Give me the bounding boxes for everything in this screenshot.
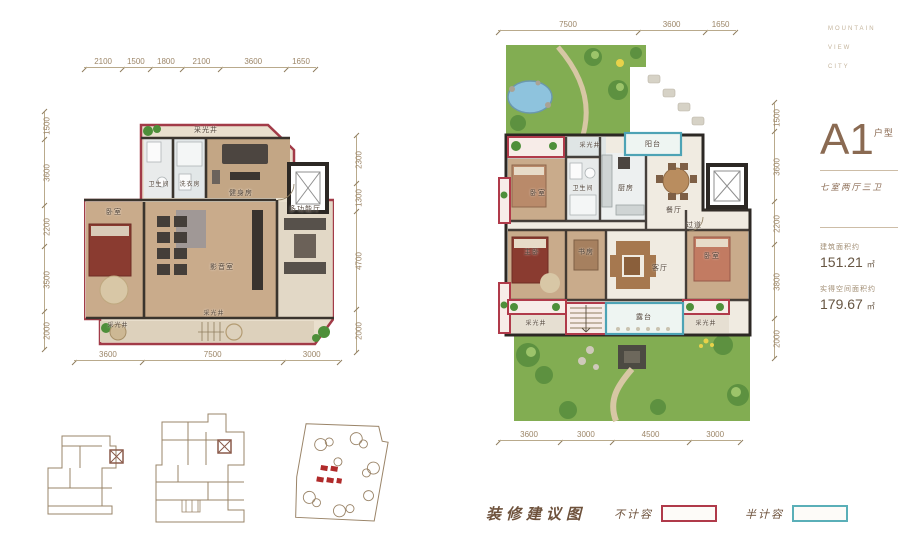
room-label-laundry: 洗衣房 (179, 179, 200, 188)
room-label-multi-hall: 多功能厅 (289, 204, 321, 214)
room-label-lightwell: 采光井 (579, 140, 600, 149)
built-area-label: 建筑面积约 (820, 242, 898, 252)
dim-label: 3000 (706, 430, 724, 439)
dim-label: 4500 (642, 430, 660, 439)
keyplan-thumb-2 (148, 410, 253, 535)
floorplan-sheet: 2100 1500 1800 2100 3600 1650 1500 3600 … (0, 0, 900, 545)
unit-name-suffix: 户型 (874, 128, 894, 138)
dim-label: 1300 (354, 189, 363, 207)
dim-label: 1650 (292, 57, 310, 66)
dim-label: 3600 (99, 350, 117, 359)
dim-label: 7500 (559, 20, 577, 29)
dim-label: 2000 (772, 330, 781, 348)
dim-label: 2100 (192, 57, 210, 66)
dim-label: 1500 (127, 57, 145, 66)
room-label-lightwell: 采光井 (203, 308, 224, 317)
siteplan-thumb (284, 414, 392, 532)
built-area-value: 151.21 (820, 254, 863, 270)
brand-line: CITY (828, 64, 898, 70)
room-label-lightwell: 采光井 (525, 318, 546, 327)
legend-item-half: 半计容 (745, 505, 848, 522)
dim-label: 3000 (303, 350, 321, 359)
room-label-lightwell: 采光井 (194, 125, 218, 135)
room-label-balcony: 阳台 (645, 139, 661, 149)
room-label-living: 客厅 (652, 263, 668, 273)
legend-swatch-red (661, 505, 717, 522)
dim-label: 2300 (354, 151, 363, 169)
left-plan-dims-bottom: 3600 7500 3000 (74, 348, 340, 364)
dim-label: 4700 (354, 252, 363, 270)
room-label-master: 主卧 (524, 247, 540, 257)
dim-label: 1500 (772, 109, 781, 127)
basement-floorplan: 采光井 卫生间 洗衣房 健身房 多功能厅 卧室 影音室 采光井 采光井 (84, 122, 334, 347)
dim-label: 2100 (94, 57, 112, 66)
room-label-lightwell: 采光井 (107, 320, 128, 329)
dim-label: 2000 (42, 322, 51, 340)
dim-label: 2000 (354, 322, 363, 340)
right-plan-dims-right: 1500 3600 2200 3800 2000 (766, 103, 782, 358)
room-label-gym: 健身房 (229, 188, 253, 198)
left-plan-dims-top: 2100 1500 1800 2100 3600 1650 (84, 55, 316, 71)
dim-label: 3800 (772, 273, 781, 291)
built-area: 建筑面积约 151.21 ㎡ (820, 242, 898, 270)
dim-label: 3500 (42, 271, 51, 289)
dim-label: 1650 (712, 20, 730, 29)
legend-swatch-teal (792, 505, 848, 522)
brand-line: VIEW (828, 45, 898, 51)
room-label-bath: 卫生间 (148, 179, 169, 188)
dim-label: 3600 (244, 57, 262, 66)
dim-label: 1500 (42, 117, 51, 135)
unit-name: A1 (820, 115, 874, 164)
dim-label: 7500 (204, 350, 222, 359)
legend-title: 装修建议图 (486, 503, 586, 524)
area-unit: ㎡ (867, 302, 875, 311)
usable-area-label: 实得空间面积约 (820, 284, 898, 294)
dim-label: 3600 (772, 158, 781, 176)
room-label-dining: 餐厅 (666, 205, 682, 215)
brand-mark: MOUNTAIN VIEW CITY (828, 26, 898, 83)
right-plan-dims-top: 7500 3600 1650 (498, 18, 736, 34)
room-label-bedroom: 卧室 (704, 251, 720, 261)
dim-label: 3600 (42, 164, 51, 182)
usable-area: 实得空间面积约 179.67 ㎡ (820, 284, 898, 312)
area-unit: ㎡ (867, 260, 875, 269)
keyplan-thumb-1 (40, 428, 130, 523)
legend: 装修建议图 不计容 半计容 (486, 503, 848, 524)
room-label-study: 书房 (578, 247, 594, 257)
usable-area-value: 179.67 (820, 296, 863, 312)
brand-line: MOUNTAIN (828, 26, 898, 32)
room-label-bedroom: 卧室 (530, 188, 546, 198)
legend-item-excluded: 不计容 (614, 505, 717, 522)
dim-label: 2200 (772, 215, 781, 233)
ground-floorplan: 采光井 阳台 卧室 卫生间 厨房 餐厅 过道 主卧 书房 客厅 卧室 采光井 露… (498, 45, 762, 425)
room-label-terrace: 露台 (636, 312, 652, 322)
dim-label: 3000 (577, 430, 595, 439)
legend-item-label: 半计容 (745, 506, 784, 522)
room-label-lightwell: 采光井 (695, 318, 716, 327)
room-label-hallway: 过道 (686, 220, 702, 230)
dim-label: 3600 (663, 20, 681, 29)
ground-plan-drawing (498, 45, 762, 425)
room-label-bedroom: 卧室 (106, 207, 122, 217)
room-label-kitchen: 厨房 (618, 183, 634, 193)
unit-info-panel: A1户型 七室两厅三卫 建筑面积约 151.21 ㎡ 实得空间面积约 179.6… (820, 118, 898, 312)
dim-label: 3600 (520, 430, 538, 439)
left-plan-dims-left: 1500 3600 2200 3500 2000 (36, 112, 52, 349)
divider (820, 170, 898, 171)
right-plan-dims-bottom: 3600 3000 4500 3000 (498, 428, 741, 444)
left-plan-dims-right: 2300 1300 4700 2000 (348, 136, 364, 352)
room-label-theater: 影音室 (210, 262, 234, 272)
divider (820, 227, 898, 228)
dim-label: 1800 (157, 57, 175, 66)
room-label-bath: 卫生间 (572, 183, 593, 192)
dim-label: 2200 (42, 218, 51, 236)
legend-item-label: 不计容 (614, 506, 653, 522)
unit-tagline: 七室两厅三卫 (820, 181, 898, 193)
